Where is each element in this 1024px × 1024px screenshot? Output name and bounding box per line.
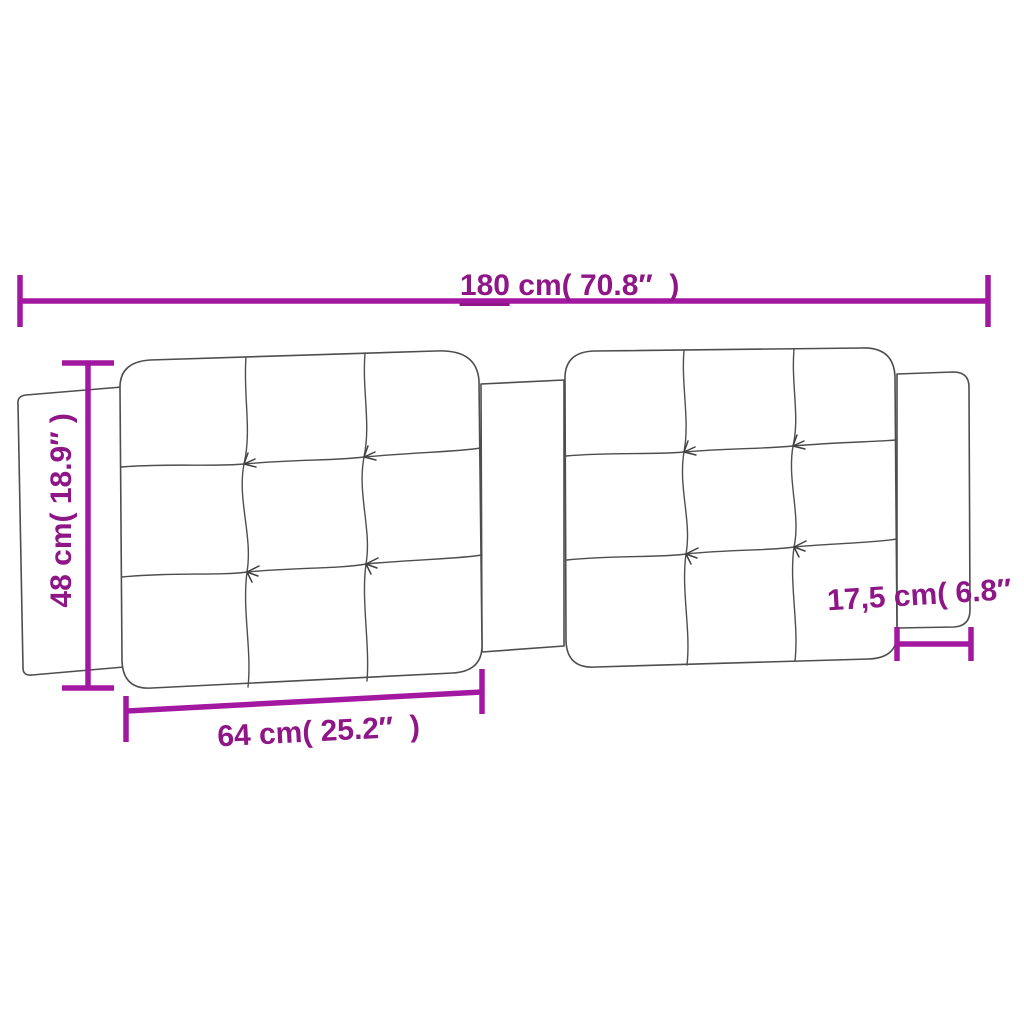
dimension-unit: cm( 6.8″ ) <box>885 572 1024 614</box>
dimension-label-side-flap-width: 17,5 cm( 6.8″ ) <box>791 544 1024 649</box>
left-cushion-panel <box>120 351 482 688</box>
dimension-value: 64 <box>216 719 251 754</box>
dimension-label-total-width: 180 cm( 70.8″ ) <box>427 241 680 331</box>
dimension-value: 180 <box>460 269 510 306</box>
dimension-value: 17,5 <box>826 581 886 618</box>
headboard-drawing <box>0 0 1024 1024</box>
dimension-unit: cm( 70.8″ ) <box>510 269 679 302</box>
middle-connector <box>481 380 564 652</box>
dimension-value: 48 <box>45 574 78 607</box>
dimension-unit: cm( 18.9″ ) <box>45 413 78 574</box>
dimension-diagram: 180 cm( 70.8″ ) 48 cm( 18.9″ ) 64 cm( 25… <box>0 0 1024 1024</box>
dimension-label-height: 48 cm( 18.9″ ) <box>17 413 107 641</box>
dimension-label-panel-width: 64 cm( 25.2″ ) <box>182 682 423 784</box>
dimension-unit: cm( 25.2″ ) <box>250 710 421 752</box>
